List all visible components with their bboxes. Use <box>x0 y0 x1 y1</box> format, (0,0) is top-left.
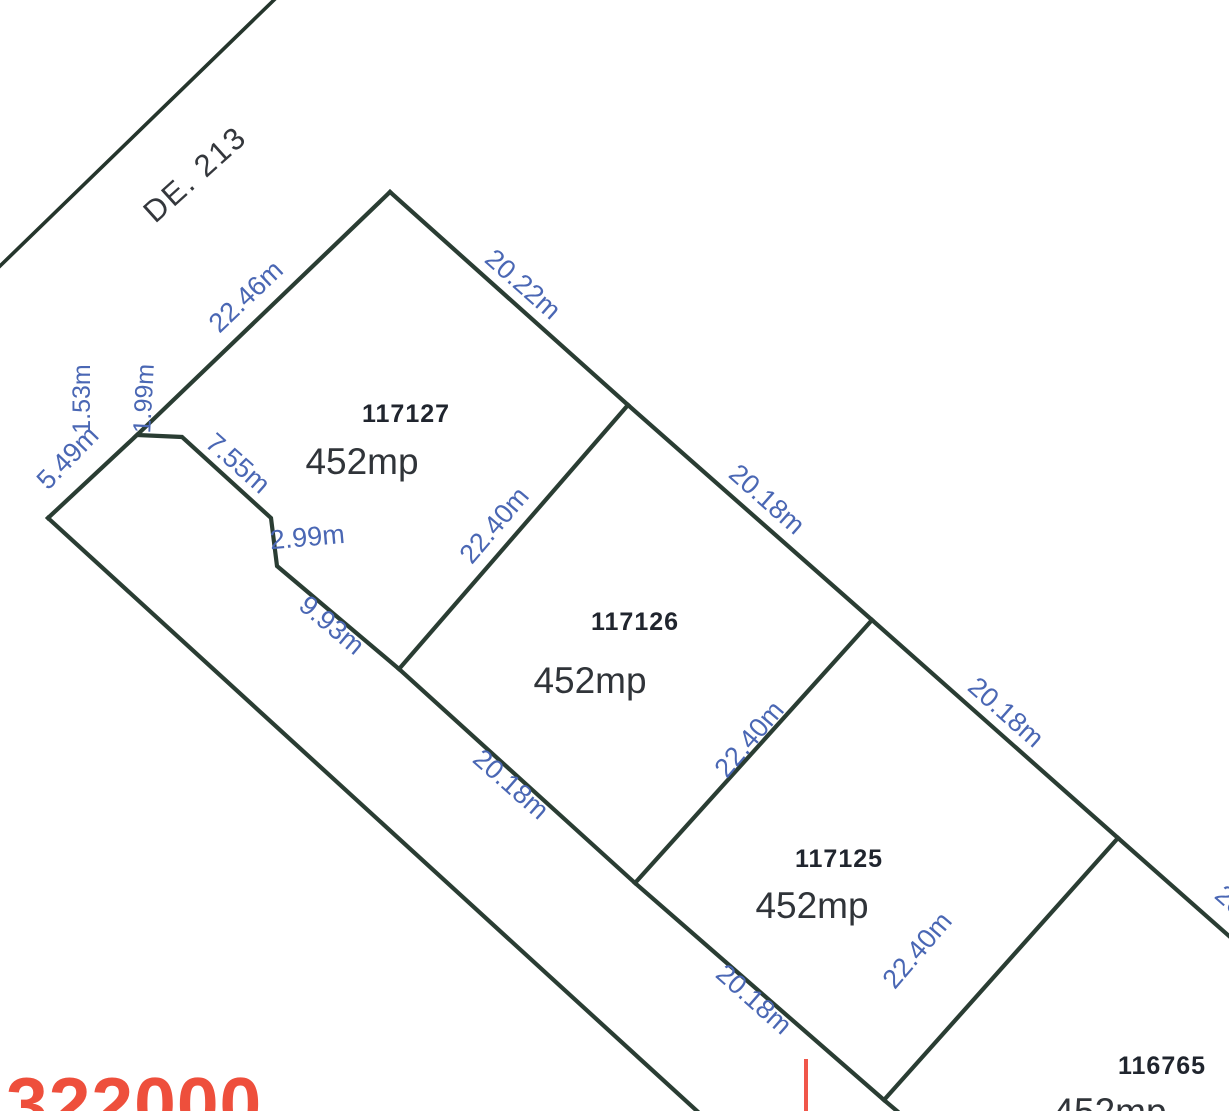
dimension-label: 1.99m <box>128 363 160 434</box>
dimension-label: 1.53m <box>68 364 96 433</box>
parcel-area: 452mp <box>305 441 418 482</box>
dimension-label: 20.18m <box>467 743 554 825</box>
parcel-id: 116765 <box>1118 1052 1206 1080</box>
road-label: DE. 213 <box>136 119 253 229</box>
strip-boundary <box>48 518 697 1111</box>
parcel-id: 117125 <box>795 845 883 873</box>
parcel-area: 452mp <box>1053 1091 1166 1111</box>
parcel-boundary-top <box>390 192 1229 936</box>
parcel-area: 452mp <box>755 885 868 926</box>
dimension-label: 20.18m <box>710 958 797 1040</box>
dimension-label: 9.93m <box>293 589 370 660</box>
parcel-id: 117127 <box>362 400 450 428</box>
parcel-area: 452mp <box>533 660 646 701</box>
cadastral-map: DE. 213 322000 117127 452mp 117126 452mp… <box>0 0 1229 1111</box>
dimension-label: 22.40m <box>877 906 958 994</box>
parcel-id: 117126 <box>591 608 679 636</box>
dimension-label: 22.40m <box>709 695 790 783</box>
dimension-label: 22.46m <box>203 255 289 339</box>
grid-coordinate-label: 322000 <box>6 1062 262 1111</box>
parcel-boundary-left-bottom <box>137 192 897 1111</box>
dimension-label: 2.99m <box>269 519 346 555</box>
